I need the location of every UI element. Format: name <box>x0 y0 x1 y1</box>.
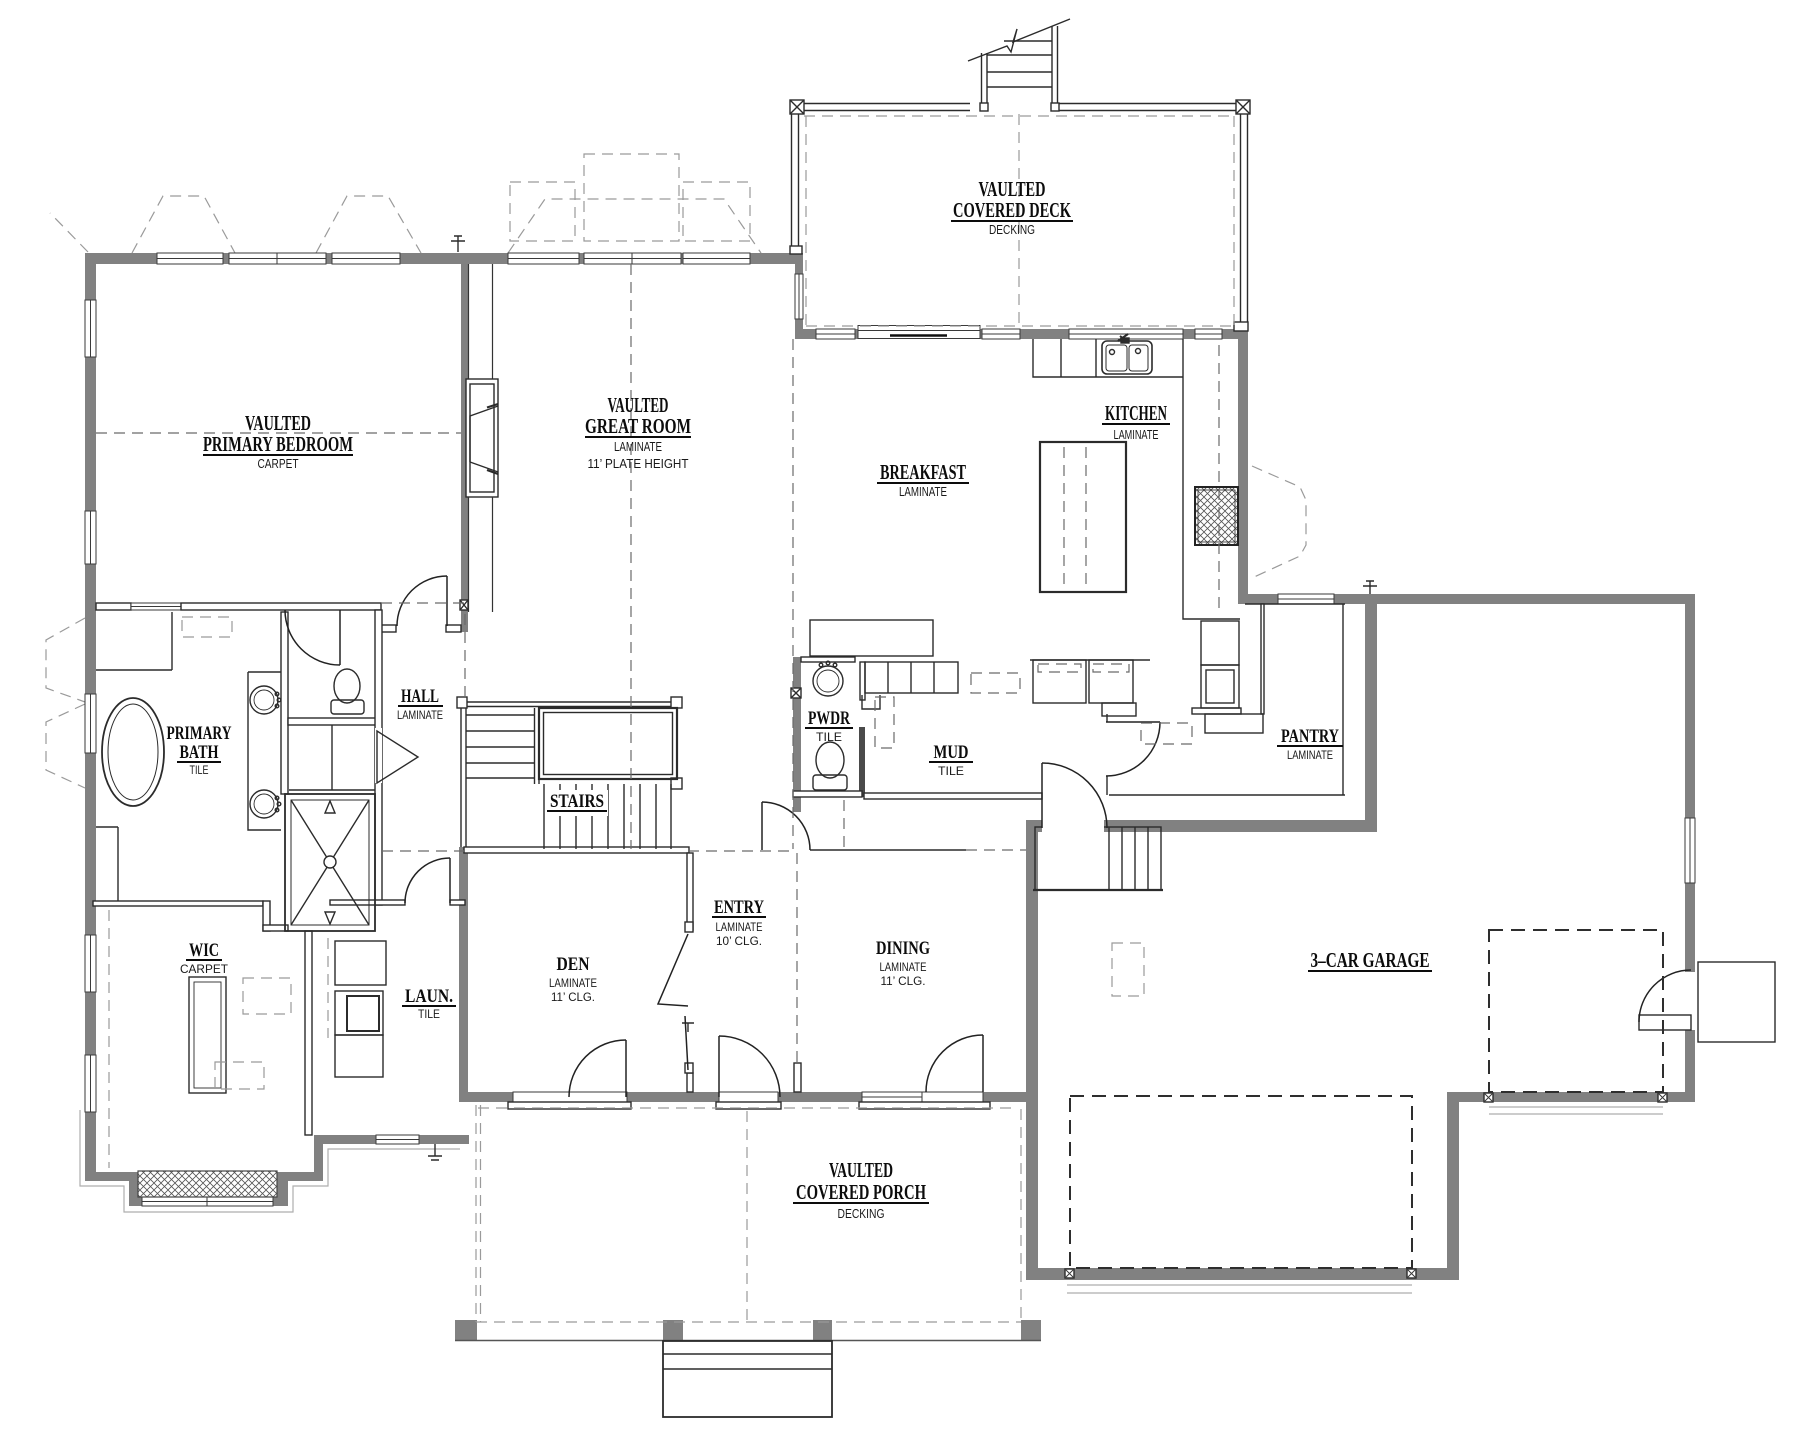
svg-text:LAMINATE: LAMINATE <box>899 484 947 499</box>
svg-text:PWDR: PWDR <box>808 708 850 729</box>
svg-text:TILE: TILE <box>418 1007 440 1021</box>
svg-text:WIC: WIC <box>189 940 219 961</box>
svg-text:DECKING: DECKING <box>838 1206 885 1221</box>
svg-text:COVERED DECK: COVERED DECK <box>953 198 1071 222</box>
svg-text:TILE: TILE <box>816 730 842 744</box>
svg-text:DECKING: DECKING <box>989 222 1035 237</box>
svg-text:BREAKFAST: BREAKFAST <box>880 460 966 484</box>
svg-text:11’ CLG.: 11’ CLG. <box>551 990 595 1004</box>
svg-text:LAMINATE: LAMINATE <box>397 708 443 722</box>
svg-text:LAMINATE: LAMINATE <box>549 976 597 990</box>
svg-text:11’ CLG.: 11’ CLG. <box>881 974 926 988</box>
svg-text:LAMINATE: LAMINATE <box>1287 748 1333 762</box>
svg-text:PRIMARY BEDROOM: PRIMARY BEDROOM <box>203 432 353 456</box>
svg-text:GREAT ROOM: GREAT ROOM <box>585 414 691 438</box>
svg-text:LAMINATE: LAMINATE <box>1114 427 1159 442</box>
svg-text:3–CAR GARAGE: 3–CAR GARAGE <box>1311 948 1430 972</box>
svg-text:HALL: HALL <box>401 686 439 707</box>
svg-text:11’ PLATE HEIGHT: 11’ PLATE HEIGHT <box>588 456 689 471</box>
svg-text:LAMINATE: LAMINATE <box>880 960 927 974</box>
svg-text:PRIMARY: PRIMARY <box>167 723 232 744</box>
svg-text:10’ CLG.: 10’ CLG. <box>716 934 762 948</box>
svg-text:LAMINATE: LAMINATE <box>716 920 763 934</box>
svg-text:DEN: DEN <box>557 954 590 975</box>
svg-text:TILE: TILE <box>190 763 209 777</box>
svg-text:KITCHEN: KITCHEN <box>1105 401 1167 425</box>
svg-text:LAUN.: LAUN. <box>405 986 453 1007</box>
svg-text:CARPET: CARPET <box>180 962 229 976</box>
svg-text:CARPET: CARPET <box>258 456 299 471</box>
svg-text:PANTRY: PANTRY <box>1281 726 1339 747</box>
svg-text:LAMINATE: LAMINATE <box>614 439 662 454</box>
svg-text:DINING: DINING <box>876 938 930 959</box>
svg-text:COVERED PORCH: COVERED PORCH <box>796 1180 926 1204</box>
svg-text:BATH: BATH <box>180 742 219 763</box>
svg-text:STAIRS: STAIRS <box>550 791 604 812</box>
svg-text:TILE: TILE <box>938 764 964 778</box>
svg-text:MUD: MUD <box>934 742 969 763</box>
svg-text:VAULTED: VAULTED <box>829 1158 893 1182</box>
svg-text:ENTRY: ENTRY <box>714 897 764 918</box>
